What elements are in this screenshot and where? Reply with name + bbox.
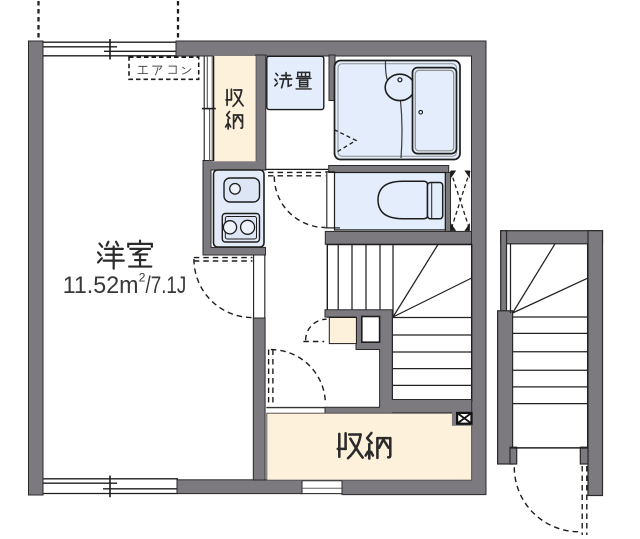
svg-text:/7.1J: /7.1J bbox=[146, 272, 187, 299]
svg-text:11.52m: 11.52m bbox=[63, 272, 139, 299]
